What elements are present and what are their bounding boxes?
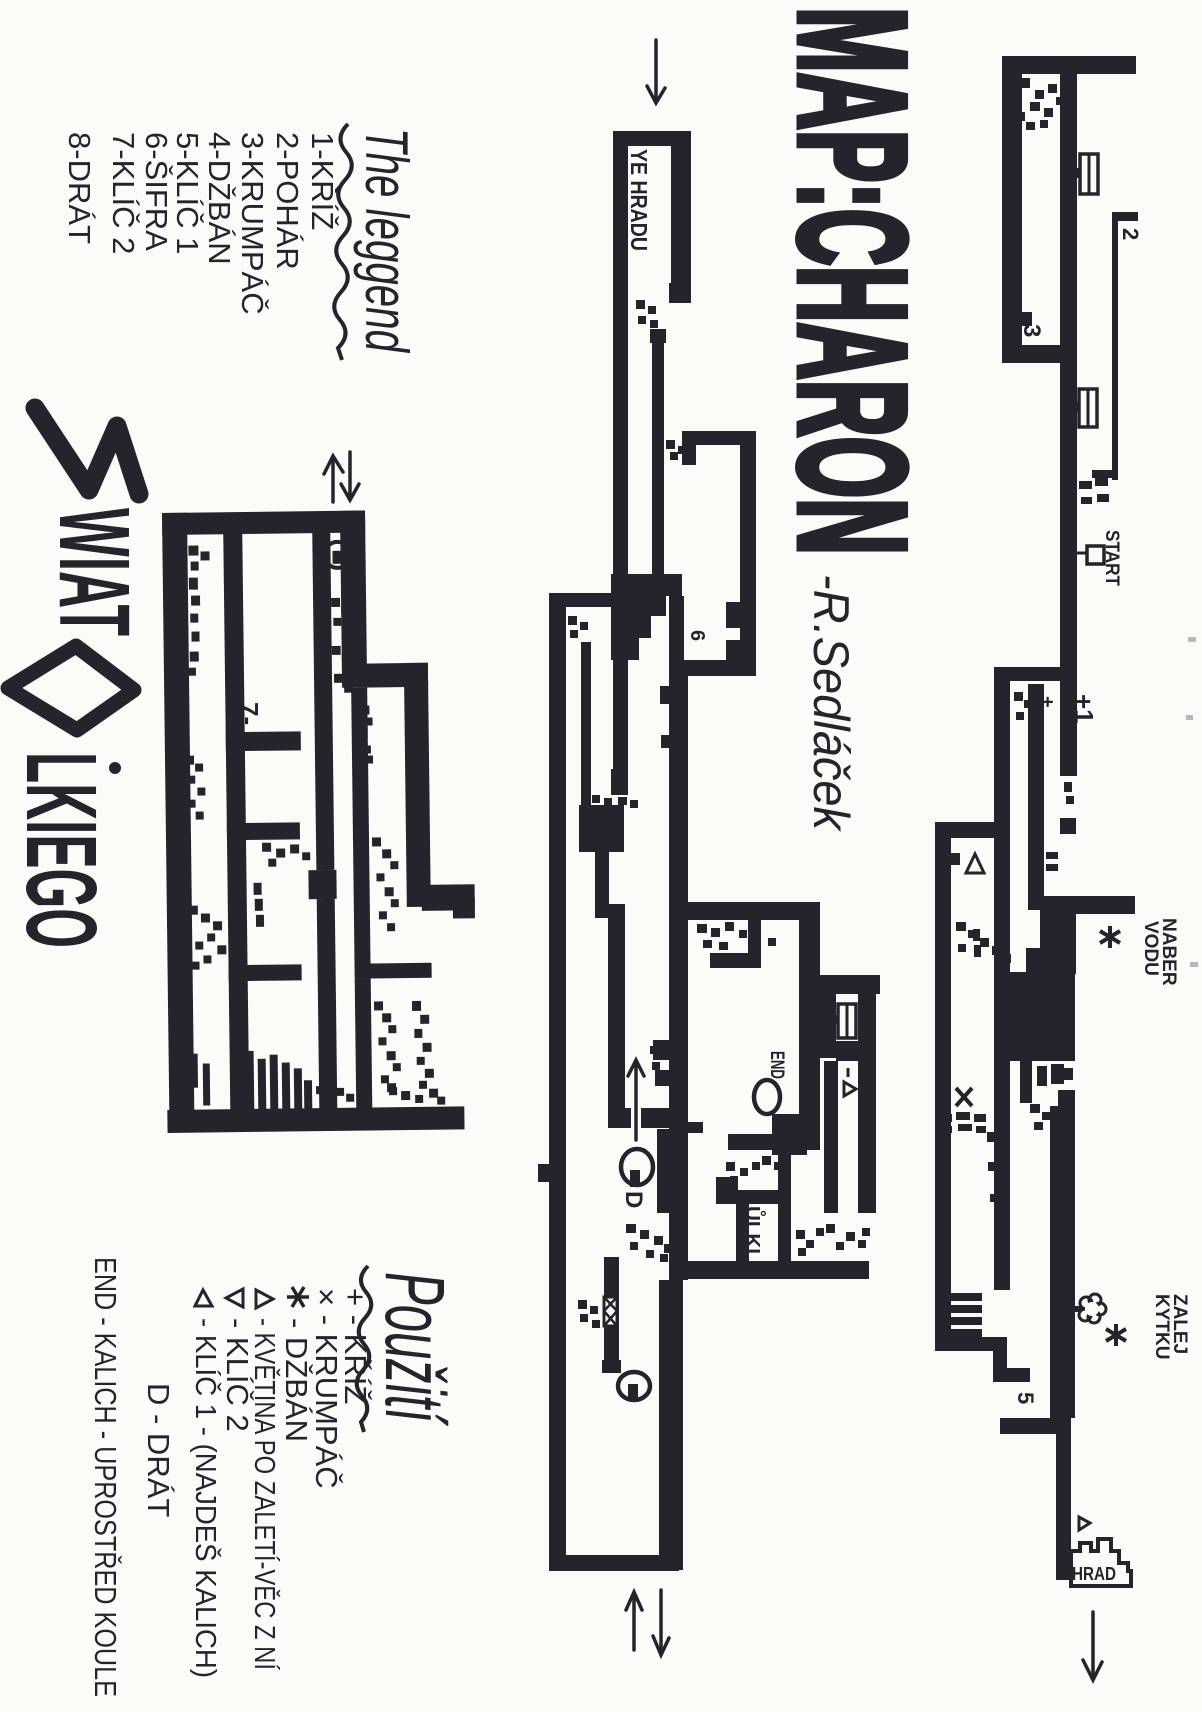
svg-text:VODU: VODU [1140, 921, 1161, 976]
svg-text:KYTKU: KYTKU [1151, 1294, 1172, 1359]
svg-text:HRAD: HRAD [1072, 1564, 1116, 1584]
svg-text:WIAT: WIAT [38, 508, 150, 636]
svg-text:D - DRÁT: D - DRÁT [141, 1383, 176, 1517]
svg-text:3: 3 [1018, 324, 1045, 337]
svg-text:D: D [620, 1191, 647, 1208]
svg-text:+1: +1 [1069, 694, 1099, 724]
svg-text:- KLÍČ 2: - KLÍČ 2 [220, 1318, 255, 1432]
svg-text:8-DRÁT: 8-DRÁT [62, 132, 97, 244]
svg-text:- DŽBÁN: - DŽBÁN [279, 1318, 314, 1442]
svg-text:ŮLKI: ŮLKI [741, 1206, 767, 1254]
svg-text:2: 2 [1118, 228, 1143, 240]
svg-text:YE HRADU: YE HRADU [626, 149, 652, 251]
svg-text:END - KALICH - UPROSTŘED KOULE: END - KALICH - UPROSTŘED KOULE [88, 1257, 123, 1697]
svg-text:2-POHÁR: 2-POHÁR [270, 132, 305, 270]
svg-text:3-KRUMPÁČ: 3-KRUMPÁČ [235, 132, 270, 315]
svg-text:1-KŘÍŽ: 1-KŘÍŽ [305, 132, 340, 230]
svg-text:The leggend: The leggend [353, 128, 420, 353]
svg-text:+: + [1036, 696, 1058, 708]
svg-text:- KLÍČ 1 - (NAJDEŠ KALICH): - KLÍČ 1 - (NAJDEŠ KALICH) [189, 1318, 223, 1678]
svg-text:5: 5 [1013, 1392, 1038, 1404]
svg-text:7-KLÍČ 2: 7-KLÍČ 2 [106, 132, 141, 254]
svg-text:START: START [1101, 530, 1122, 586]
svg-text:5-KLÍČ 1: 5-KLÍČ 1 [170, 132, 205, 254]
svg-text:6: 6 [686, 630, 708, 641]
svg-text:LKIEGO: LKIEGO [5, 752, 117, 948]
svg-text:4-DŽBÁN: 4-DŽBÁN [202, 132, 237, 265]
svg-text:6-ŠIFRA: 6-ŠIFRA [139, 132, 174, 251]
svg-text:-R.Sedláček: -R.Sedláček [803, 574, 859, 833]
svg-text:END: END [766, 1051, 787, 1079]
svg-text:MAP:CHARON: MAP:CHARON [767, 7, 937, 555]
svg-text:7-: 7- [234, 702, 264, 725]
svg-text:Použití: Použití [368, 1272, 462, 1426]
